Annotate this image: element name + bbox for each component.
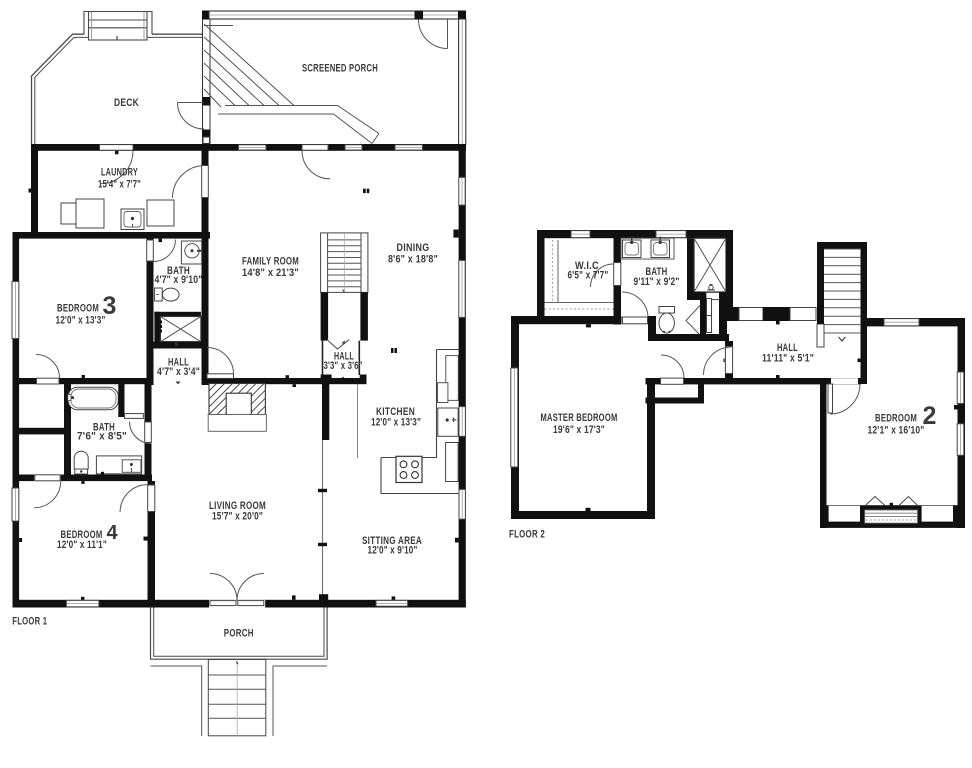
svg-text:FAMILY ROOM: FAMILY ROOM	[242, 256, 299, 268]
svg-text:FLOOR 1: FLOOR 1	[12, 616, 47, 628]
svg-text:12'1" x 16'10": 12'1" x 16'10"	[868, 425, 925, 437]
svg-text:14'8" x 21'3": 14'8" x 21'3"	[242, 267, 299, 279]
svg-text:BEDROOM: BEDROOM	[875, 413, 917, 425]
svg-text:3'3" x 3'6": 3'3" x 3'6"	[324, 360, 363, 372]
svg-text:FLOOR 2: FLOOR 2	[509, 529, 545, 541]
svg-text:LAUNDRY: LAUNDRY	[101, 167, 138, 179]
svg-text:15'7" x 20'0": 15'7" x 20'0"	[212, 511, 263, 523]
svg-text:15'4" x 7'7": 15'4" x 7'7"	[98, 179, 141, 191]
svg-text:DECK: DECK	[114, 97, 139, 109]
svg-text:11'11" x 5'1": 11'11" x 5'1"	[762, 353, 814, 365]
svg-text:19'6" x 17'3": 19'6" x 17'3"	[553, 424, 605, 436]
svg-text:9'11" x 9'2": 9'11" x 9'2"	[634, 276, 680, 288]
svg-text:12'0" x 9'10": 12'0" x 9'10"	[368, 545, 418, 557]
svg-text:SCREENED PORCH: SCREENED PORCH	[302, 63, 378, 75]
svg-text:MASTER BEDROOM: MASTER BEDROOM	[541, 412, 618, 424]
svg-text:12'0" x 13'3": 12'0" x 13'3"	[56, 315, 106, 327]
svg-text:4'7" x 3'4": 4'7" x 3'4"	[157, 366, 200, 378]
svg-text:BEDROOM: BEDROOM	[57, 303, 99, 315]
svg-text:DINING: DINING	[397, 242, 430, 254]
svg-text:7'6" x 8'5": 7'6" x 8'5"	[77, 431, 127, 443]
svg-text:2: 2	[923, 402, 937, 430]
svg-text:4: 4	[106, 522, 118, 544]
svg-text:6'5" x 7'7": 6'5" x 7'7"	[568, 270, 609, 282]
svg-text:8'6" x 18'8": 8'6" x 18'8"	[388, 254, 438, 266]
svg-text:PORCH: PORCH	[224, 628, 254, 640]
svg-text:12'0" x 13'3": 12'0" x 13'3"	[371, 417, 421, 429]
svg-text:12'0" x 11'1": 12'0" x 11'1"	[57, 539, 107, 551]
svg-text:4'7" x 9'10": 4'7" x 9'10"	[155, 274, 203, 286]
